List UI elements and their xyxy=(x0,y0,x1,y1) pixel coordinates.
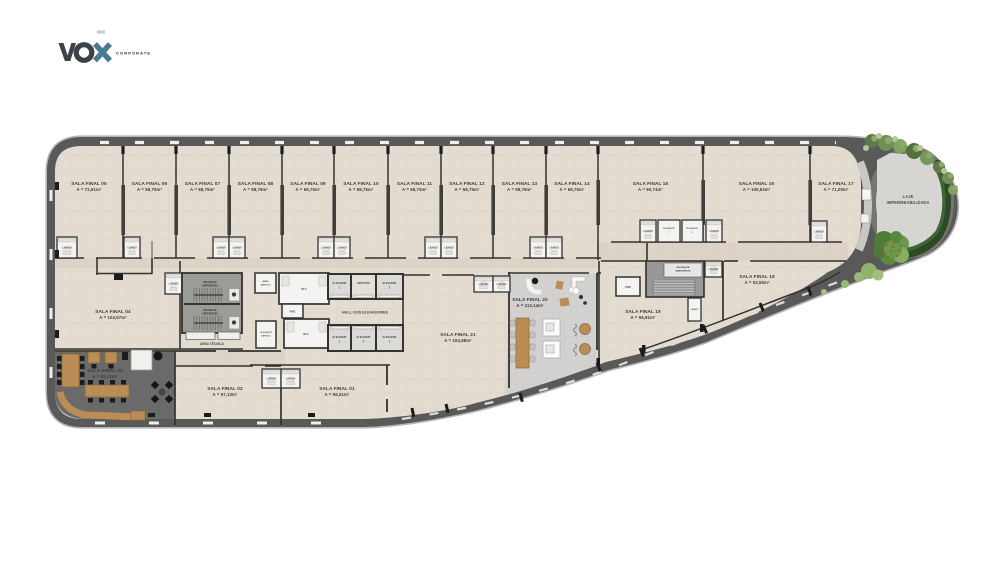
svg-text:SALA FINAL 08: SALA FINAL 08 xyxy=(238,181,274,186)
svg-text:A = 57,13m²: A = 57,13m² xyxy=(213,392,238,397)
svg-text:LAVABO: LAVABO xyxy=(444,246,454,249)
svg-text:SALA FINAL 13: SALA FINAL 13 xyxy=(502,181,538,186)
svg-text:LAVABO: LAVABO xyxy=(814,230,824,233)
svg-text:ELEVADOR: ELEVADOR xyxy=(686,227,698,230)
svg-text:A = 104,57m²: A = 104,57m² xyxy=(99,315,127,320)
svg-text:A = 58,75m²: A = 58,75m² xyxy=(137,187,162,192)
svg-text:ESCADA DE: ESCADA DE xyxy=(203,309,217,312)
svg-text:W.C: W.C xyxy=(301,287,307,291)
svg-text:CORPORATE: CORPORATE xyxy=(116,51,151,56)
svg-text:ELEVADOR: ELEVADOR xyxy=(357,336,371,339)
svg-text:LAVABO: LAVABO xyxy=(691,308,699,311)
svg-text:ELEVADOR: ELEVADOR xyxy=(663,227,675,230)
svg-text:SALA FINAL 05: SALA FINAL 05 xyxy=(71,181,107,186)
svg-text:A = 58,75m²: A = 58,75m² xyxy=(455,187,480,192)
svg-text:LAVABO: LAVABO xyxy=(497,283,507,286)
svg-text:LAVABO: LAVABO xyxy=(216,246,226,249)
svg-text:IMPERMEABILIZADA: IMPERMEABILIZADA xyxy=(887,200,930,205)
svg-text:LAVABO: LAVABO xyxy=(169,282,179,285)
svg-text:SALA FINAL 20: SALA FINAL 20 xyxy=(512,297,548,302)
svg-text:LAVABO: LAVABO xyxy=(62,246,72,249)
svg-text:ESCADA DE: ESCADA DE xyxy=(203,281,217,284)
svg-text:SALA FINAL 10: SALA FINAL 10 xyxy=(343,181,379,186)
svg-text:DEPOSITO: DEPOSITO xyxy=(357,282,370,285)
svg-text:LAVABO: LAVABO xyxy=(709,268,719,271)
svg-text:PNE: PNE xyxy=(625,285,631,289)
svg-text:SALA FINAL 18: SALA FINAL 18 xyxy=(739,274,775,279)
svg-text:LAVABO: LAVABO xyxy=(479,283,489,286)
svg-text:SALA FINAL 03: SALA FINAL 03 xyxy=(87,368,123,373)
svg-text:LAVABO: LAVABO xyxy=(321,246,331,249)
svg-text:LAVABO: LAVABO xyxy=(267,377,277,380)
svg-text:LAVABO: LAVABO xyxy=(549,246,559,249)
svg-text:A = 100,53m²: A = 100,53m² xyxy=(743,187,771,192)
svg-text:LAVABO: LAVABO xyxy=(127,246,137,249)
svg-text:ELEVADOR: ELEVADOR xyxy=(383,336,397,339)
svg-text:EMERGÊNCIA: EMERGÊNCIA xyxy=(676,269,691,272)
svg-text:LAVABO: LAVABO xyxy=(643,230,653,233)
svg-text:W.C: W.C xyxy=(303,332,309,336)
svg-text:SALA FINAL 11: SALA FINAL 11 xyxy=(397,181,432,186)
svg-text:SALA FINAL 19: SALA FINAL 19 xyxy=(625,309,661,314)
svg-text:A = 58,75m²: A = 58,75m² xyxy=(560,187,585,192)
svg-text:PNE: PNE xyxy=(290,310,296,314)
svg-text:ELEVADOR: ELEVADOR xyxy=(260,331,272,334)
svg-text:A = 58,75m²: A = 58,75m² xyxy=(402,187,427,192)
svg-text:ELEVADOR: ELEVADOR xyxy=(383,282,397,285)
svg-text:SERVIÇO: SERVIÇO xyxy=(261,284,271,286)
svg-text:A = 90,74m²: A = 90,74m² xyxy=(638,187,663,192)
svg-text:A = 55,51m²: A = 55,51m² xyxy=(325,392,350,397)
svg-text:LAVABO: LAVABO xyxy=(232,246,242,249)
svg-text:ÁREA TÉCNICA: ÁREA TÉCNICA xyxy=(200,341,225,346)
svg-text:SALA FINAL 01: SALA FINAL 01 xyxy=(319,386,355,391)
svg-text:A = 58,75m²: A = 58,75m² xyxy=(296,187,321,192)
svg-text:SALA FINAL 21: SALA FINAL 21 xyxy=(440,332,476,337)
svg-text:SERVIÇO: SERVIÇO xyxy=(261,335,271,337)
svg-text:SALA FINAL 16: SALA FINAL 16 xyxy=(739,181,775,186)
svg-text:A = 113,14m²: A = 113,14m² xyxy=(516,303,544,308)
svg-text:A = 72,61m²: A = 72,61m² xyxy=(77,187,102,192)
svg-text:SALA FINAL 04: SALA FINAL 04 xyxy=(95,309,131,314)
svg-text:LAJE: LAJE xyxy=(903,194,914,199)
svg-text:HALL DOS ELEVADORES: HALL DOS ELEVADORES xyxy=(342,311,389,315)
svg-text:EMERGÊNCIA: EMERGÊNCIA xyxy=(202,312,218,315)
svg-text:SALA FINAL 07: SALA FINAL 07 xyxy=(185,181,221,186)
svg-text:ELEVADOR: ELEVADOR xyxy=(333,282,347,285)
svg-text:A = 53,59m²: A = 53,59m² xyxy=(745,280,770,285)
svg-text:ELEVADOR: ELEVADOR xyxy=(333,336,347,339)
svg-text:SALA FINAL 06: SALA FINAL 06 xyxy=(132,181,168,186)
svg-text:A = 58,75m²: A = 58,75m² xyxy=(190,187,215,192)
svg-text:A = 104,98m²: A = 104,98m² xyxy=(444,338,472,343)
svg-text:LAVABO: LAVABO xyxy=(533,246,543,249)
svg-text:A = 56,91m²: A = 56,91m² xyxy=(631,315,656,320)
svg-text:LAVABO: LAVABO xyxy=(709,230,719,233)
svg-text:A = 71,00m²: A = 71,00m² xyxy=(824,187,849,192)
svg-text:SALA FINAL 15: SALA FINAL 15 xyxy=(633,181,669,186)
svg-text:LAVABO: LAVABO xyxy=(428,246,438,249)
svg-text:ESCADA DE: ESCADA DE xyxy=(677,266,690,269)
svg-text:SALA FINAL 17: SALA FINAL 17 xyxy=(818,181,854,186)
svg-text:SALA FINAL 02: SALA FINAL 02 xyxy=(207,386,243,391)
svg-text:EMERGÊNCIA: EMERGÊNCIA xyxy=(202,284,218,287)
svg-text:ÁREA: ÁREA xyxy=(262,280,269,283)
svg-text:A = 58,75m²: A = 58,75m² xyxy=(349,187,374,192)
svg-text:SALA FINAL 12: SALA FINAL 12 xyxy=(449,181,485,186)
svg-text:LAVABO: LAVABO xyxy=(286,377,296,380)
svg-text:A = 58,75m²: A = 58,75m² xyxy=(507,187,532,192)
svg-text:A = 58,75m²: A = 58,75m² xyxy=(243,187,268,192)
svg-text:A = 82,31m²: A = 82,31m² xyxy=(93,374,118,379)
svg-text:LAVABO: LAVABO xyxy=(337,246,347,249)
svg-text:SALA FINAL 09: SALA FINAL 09 xyxy=(290,181,326,186)
svg-text:SALA FINAL 14: SALA FINAL 14 xyxy=(554,181,590,186)
